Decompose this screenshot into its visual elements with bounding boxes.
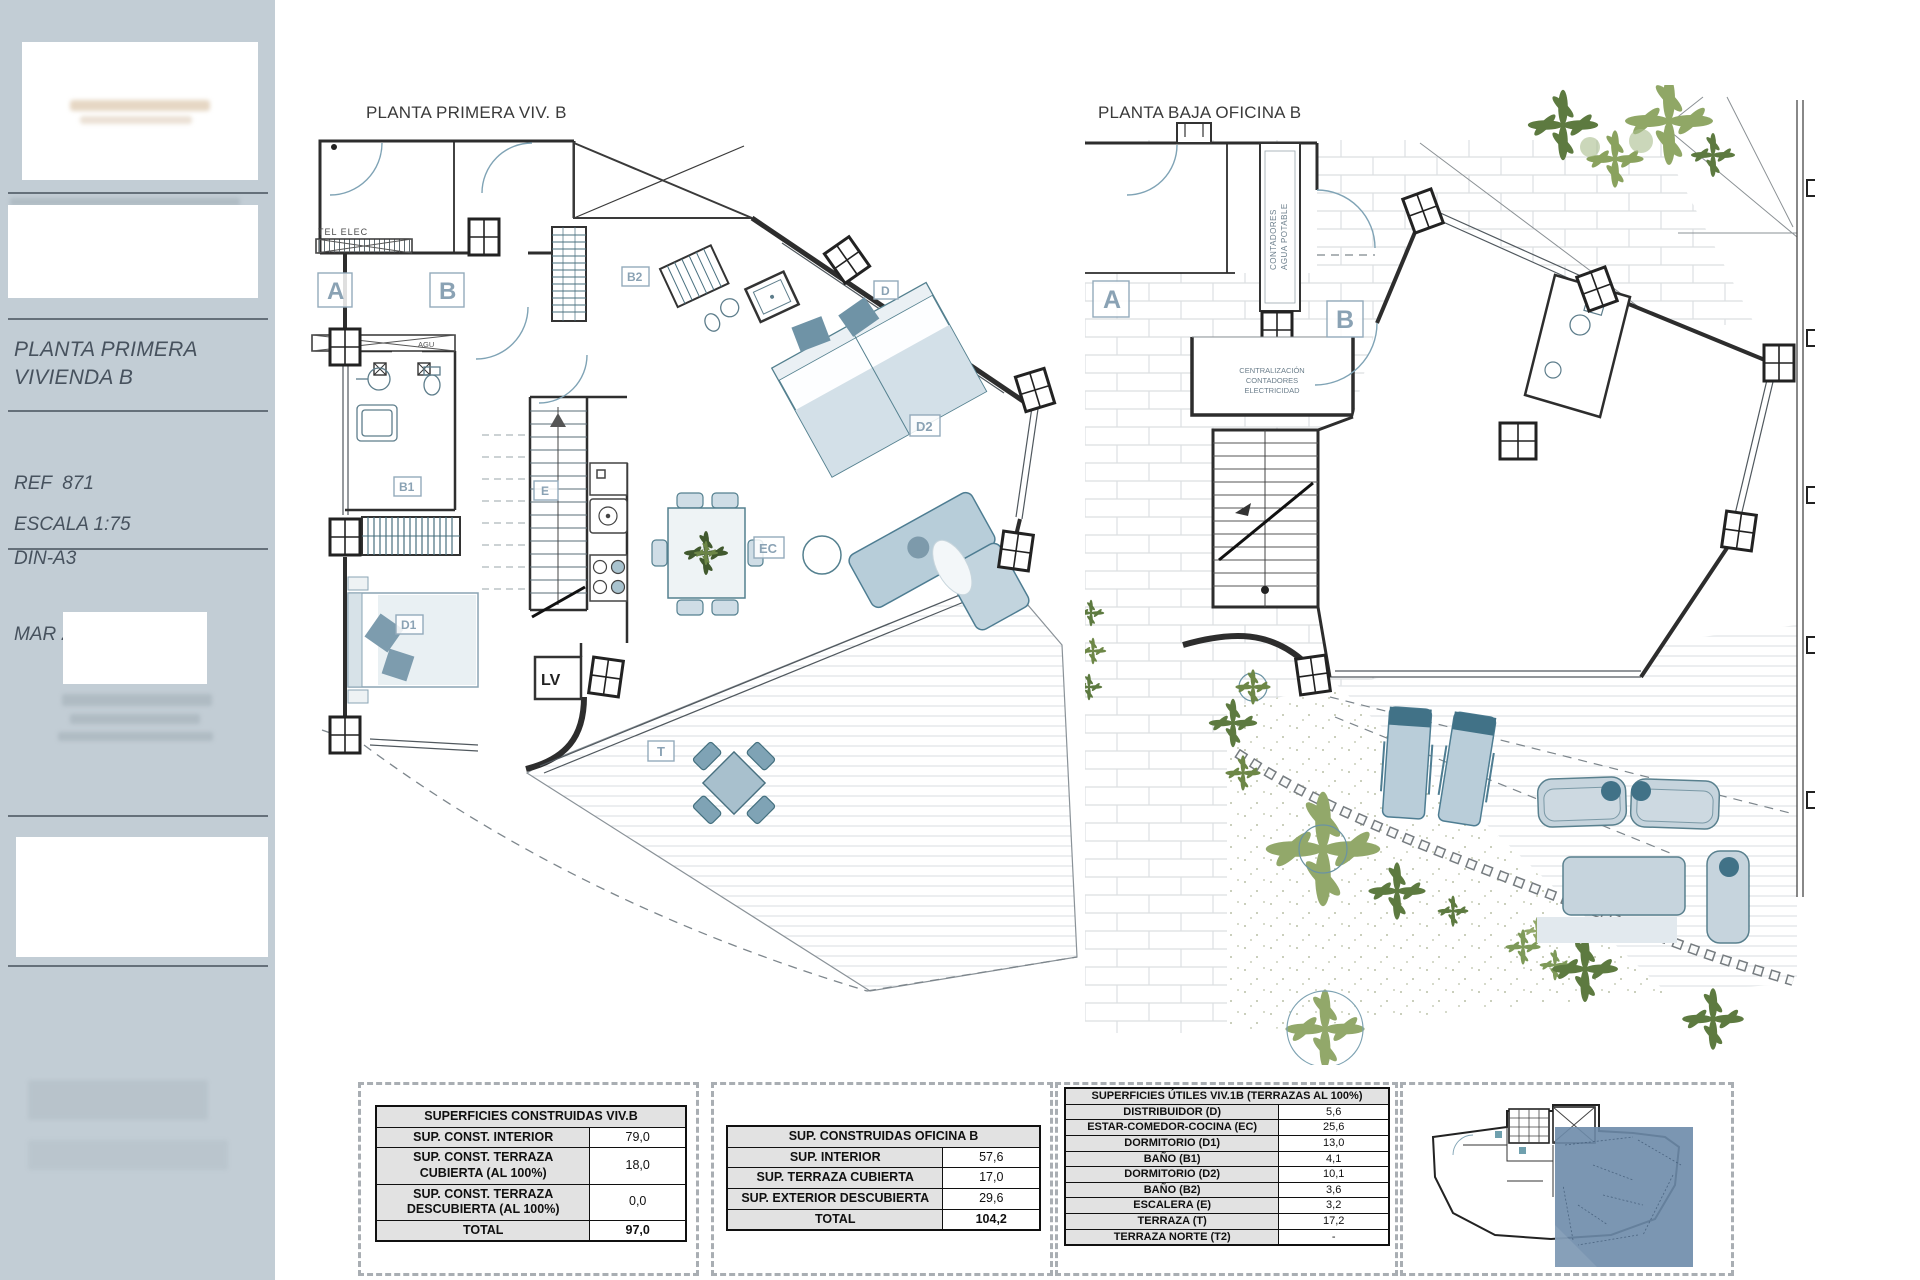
divider [8,548,268,550]
electric-meters-room: CENTRALIZACIÓN CONTADORES ELECTRICIDAD [1192,337,1353,415]
table-row: SUP. EXTERIOR DESCUBIERTA 29,6 [727,1188,1040,1209]
grille [362,517,460,555]
sheet-title: PLANTA PRIMERA VIVIENDA B [14,336,198,393]
panel-superficies-utiles: SUPERFICIES ÚTILES VIV.1B (TERRAZAS AL 1… [1055,1082,1398,1276]
table-row: SUP. INTERIOR 57,6 [727,1147,1040,1168]
table-row: SUP. CONST. TERRAZA CUBIERTA (AL 100%) 1… [376,1148,686,1184]
label-b1: B1 [399,480,415,494]
label-t: T [657,744,665,759]
laundry-lv: LV [535,657,581,699]
table-row: SUP. CONST. INTERIOR 79,0 [376,1127,686,1148]
divider [8,965,268,967]
grid-label-b: B [1336,306,1354,334]
table-row: TOTAL 97,0 [376,1220,686,1241]
central-line1: CENTRALIZACIÓN [1239,366,1304,375]
label-e: E [541,484,549,498]
divider [8,192,268,194]
table-utiles: SUPERFICIES ÚTILES VIV.1B (TERRAZAS AL 1… [1064,1087,1390,1246]
plan1-drawing: TEL ELEC [282,85,1082,1065]
stamp-box [63,612,207,684]
sheet-ref: REF 871 [14,471,104,496]
signature-box [16,837,268,957]
sheet-scale: ESCALA 1:75 [14,514,131,536]
table-row: SUP. CONST. TERRAZA DESCUBIERTA (AL 100%… [376,1184,686,1220]
table-row: BAÑO (B2) 3,6 [1065,1182,1389,1198]
sheet-title-line2: VIVIENDA B [14,364,198,392]
table-row: DISTRIBUIDOR (D) 5,6 [1065,1104,1389,1120]
table-row: ESCALERA (E) 3,2 [1065,1198,1389,1214]
panel-superficies-oficina: SUP. CONSTRUIDAS OFICINA B SUP. INTERIOR… [711,1082,1053,1276]
plot-boundary [1797,100,1815,897]
key-plan [1403,1085,1731,1273]
table-row: TOTAL 104,2 [727,1209,1040,1230]
label-ec: EC [759,541,778,556]
title-block-sidebar: PLANTA PRIMERA VIVIENDA B REF 871 DIN-A3… [0,0,275,1280]
logo-box [22,42,258,180]
tel-elec-label: TEL ELEC [318,227,368,237]
table-row: SUP. TERRAZA CUBIERTA 17,0 [727,1168,1040,1189]
stairs-e [530,407,587,617]
grid-label-a: A [1103,286,1121,314]
label-d2: D2 [916,419,933,434]
grid-label-a: A [327,278,344,305]
round-table [803,536,841,574]
label-b2: B2 [627,270,643,284]
panel-key-plan [1400,1082,1734,1276]
contadores-line1: CONTADORES [1269,209,1278,270]
water-meters-cabinet: CONTADORES AGUA POTABLE [1260,143,1300,311]
central-line3: ELECTRICIDAD [1244,386,1300,395]
contadores-line2: AGUA POTABLE [1280,203,1289,270]
dining-set [652,493,763,615]
table-title: SUPERFICIES ÚTILES VIV.1B (TERRAZAS AL 1… [1065,1088,1389,1104]
bedroom-d1 [348,577,478,703]
blank-box [8,205,258,298]
table-title: SUP. CONSTRUIDAS OFICINA B [727,1126,1040,1147]
label-d: D [881,284,890,298]
void-triangle [574,143,752,218]
bathroom-b1 [356,367,440,441]
divider [8,815,268,817]
kitchen [590,463,627,601]
divider [8,410,268,412]
void-dashes [482,435,526,589]
table-row: BAÑO (B1) 4,1 [1065,1151,1389,1167]
lv-label: LV [541,672,561,689]
divider [8,318,268,320]
label-d1: D1 [401,618,417,632]
table-row: DORMITORIO (D1) 13,0 [1065,1135,1389,1151]
central-line2: CONTADORES [1246,376,1298,385]
grid-label-b: B [439,278,456,305]
common-lobby: TEL ELEC [316,141,574,253]
drawing-sheet: PLANTA PRIMERA VIVIENDA B REF 871 DIN-A3… [0,0,1920,1280]
sheet-format: DIN-A3 [14,546,104,571]
table-viv-b: SUPERFICIES CONSTRUIDAS VIV.B SUP. CONST… [375,1105,687,1242]
sheet-title-line1: PLANTA PRIMERA [14,336,198,364]
table-title: SUPERFICIES CONSTRUIDAS VIV.B [376,1106,686,1127]
panel-superficies-viv-b: SUPERFICIES CONSTRUIDAS VIV.B SUP. CONST… [358,1082,699,1276]
agu-tag: AGU [418,340,434,349]
terrace-decking [527,577,1077,991]
table-oficina-b: SUP. CONSTRUIDAS OFICINA B SUP. INTERIOR… [726,1125,1041,1231]
table-row: TERRAZA (T) 17,2 [1065,1214,1389,1230]
table-row: ESTAR-COMEDOR-COCINA (EC) 25,6 [1065,1120,1389,1136]
table-row: TERRAZA NORTE (T2) - [1065,1229,1389,1245]
table-row: DORMITORIO (D2) 10,1 [1065,1167,1389,1183]
office-pillar [1500,423,1536,459]
office-stairs [1213,430,1318,607]
key-highlight-unit-b [1555,1127,1693,1267]
outdoor-lounge [1537,776,1749,943]
pillar [1296,655,1331,695]
plan2-drawing: CONTADORES AGUA POTABLE CENTRALIZACIÓN C… [1085,85,1855,1065]
